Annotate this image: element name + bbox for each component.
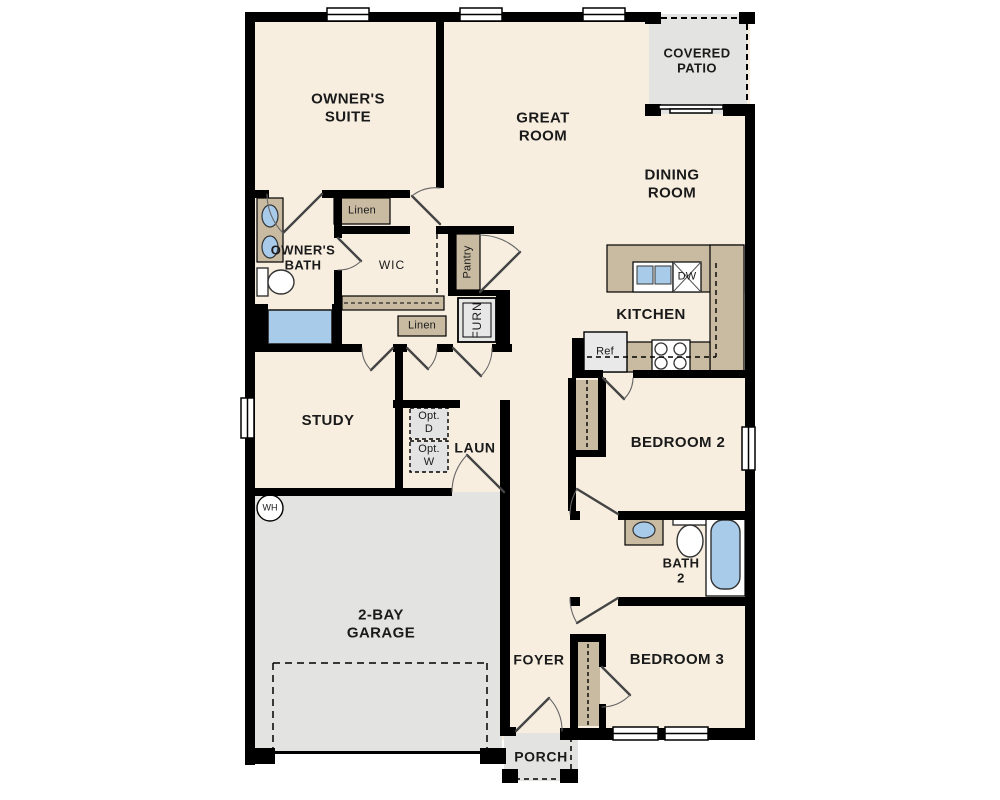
range-icon (652, 340, 690, 372)
window (613, 727, 658, 740)
window (742, 427, 755, 470)
floor-plan-drawing (0, 0, 1000, 800)
label-bedroom-3: BEDROOM 3 (630, 651, 724, 669)
toilet-icon (257, 268, 268, 296)
bathtub-icon (706, 514, 745, 596)
bath2-sink-icon (633, 522, 655, 538)
label-porch: PORCH (514, 749, 568, 766)
label-opt-washer: Opt. W (418, 443, 440, 469)
label-wic: WIC (379, 258, 405, 272)
window (460, 8, 502, 21)
label-kitchen: KITCHEN (616, 306, 685, 324)
label-study: STUDY (302, 412, 355, 430)
window (241, 398, 254, 438)
shower-icon (268, 310, 332, 344)
window (665, 727, 708, 740)
floor-plan: OWNER'S SUITE GREAT ROOM COVERED PATIO D… (0, 0, 1000, 800)
window (583, 8, 625, 21)
label-great-room: GREAT ROOM (516, 109, 569, 144)
label-bath-2: BATH 2 (663, 556, 700, 587)
label-owners-bath: OWNER'S BATH (271, 243, 335, 274)
label-foyer: FOYER (513, 652, 564, 669)
label-garage: 2-BAY GARAGE (347, 606, 415, 641)
label-linen-2: Linen (408, 320, 436, 333)
label-owners-suite: OWNER'S SUITE (311, 90, 385, 125)
label-bedroom-2: BEDROOM 2 (631, 434, 725, 452)
label-refrigerator: Ref (596, 346, 614, 359)
window (327, 8, 369, 21)
bedroom3-closet (578, 642, 600, 726)
label-dishwasher: DW (678, 271, 697, 284)
label-pantry: Pantry (462, 246, 475, 279)
label-laundry: LAUN (454, 440, 495, 457)
label-opt-dryer: Opt. D (418, 410, 440, 436)
label-covered-patio: COVERED PATIO (663, 46, 730, 77)
label-furn: FURN (470, 301, 484, 338)
label-linen-1: Linen (348, 205, 376, 218)
kitchen-side-counter (710, 245, 744, 372)
label-dining-room: DINING ROOM (645, 166, 700, 201)
label-water-heater: WH (263, 503, 278, 514)
bedroom2-closet (576, 380, 600, 452)
